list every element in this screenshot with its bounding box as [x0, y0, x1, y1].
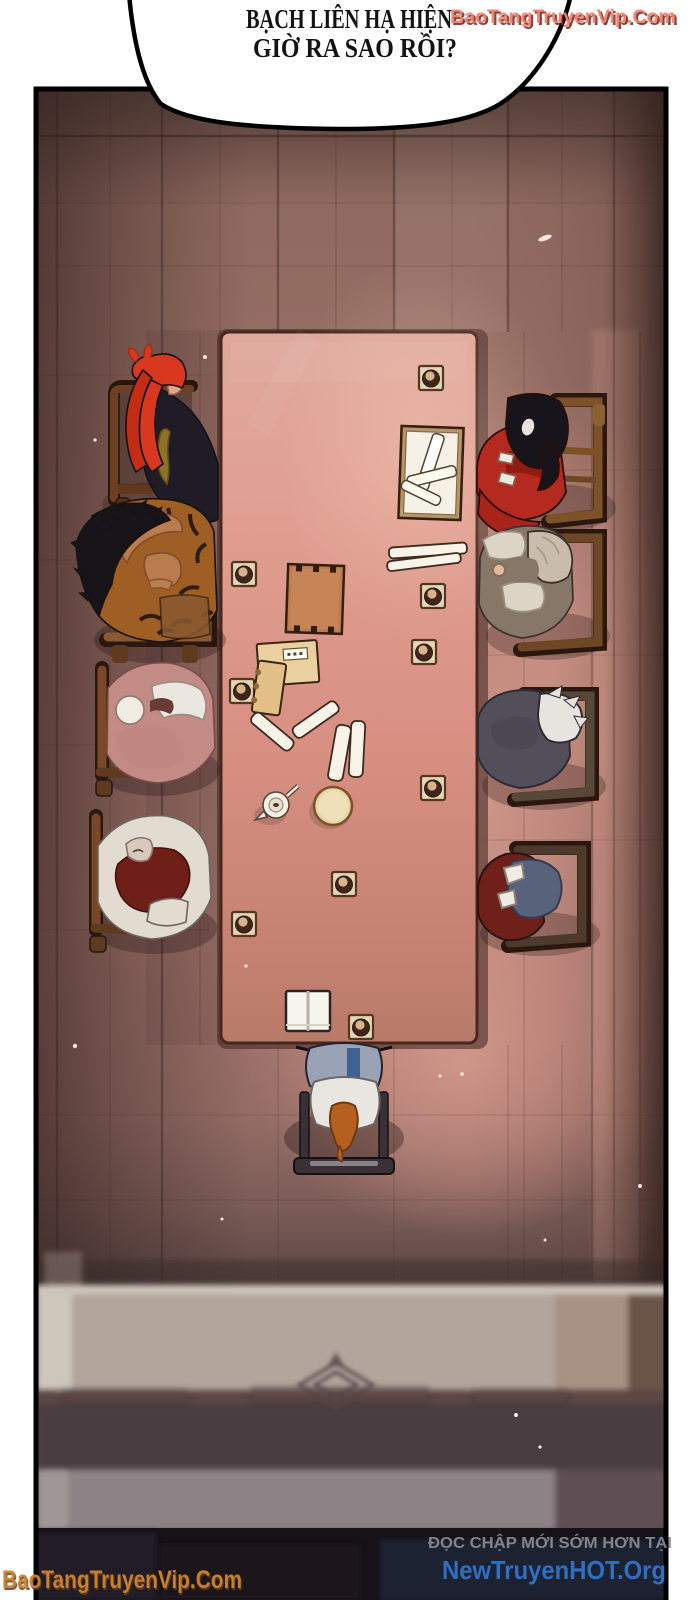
svg-text:ĐỌC CHẬP MỚI SỚM HƠN TẠI: ĐỌC CHẬP MỚI SỚM HƠN TẠI [428, 1533, 672, 1552]
svg-text:NewTruyenHOT.Org: NewTruyenHOT.Org [442, 1555, 666, 1585]
svg-text:BaoTangTruyenVip.Com: BaoTangTruyenVip.Com [2, 1566, 242, 1594]
svg-text:BẠCH LIÊN HẠ HIỆN: BẠCH LIÊN HẠ HIỆN [246, 4, 452, 34]
svg-text:BaoTangTruyenVip.Com: BaoTangTruyenVip.Com [450, 7, 676, 28]
svg-text:GIỜ RA SAO RỒI?: GIỜ RA SAO RỒI? [253, 32, 457, 63]
